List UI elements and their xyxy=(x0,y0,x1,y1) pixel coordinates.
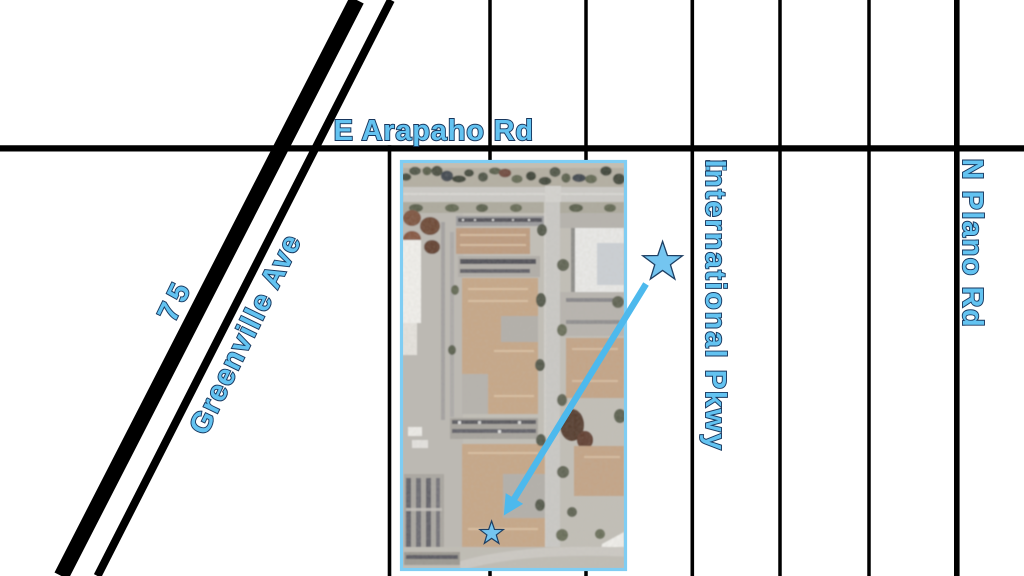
svg-text:N Plano Rd: N Plano Rd xyxy=(956,159,988,329)
svg-text:International Pkwy: International Pkwy xyxy=(699,160,731,452)
svg-text:E Arapaho Rd: E Arapaho Rd xyxy=(334,115,534,147)
